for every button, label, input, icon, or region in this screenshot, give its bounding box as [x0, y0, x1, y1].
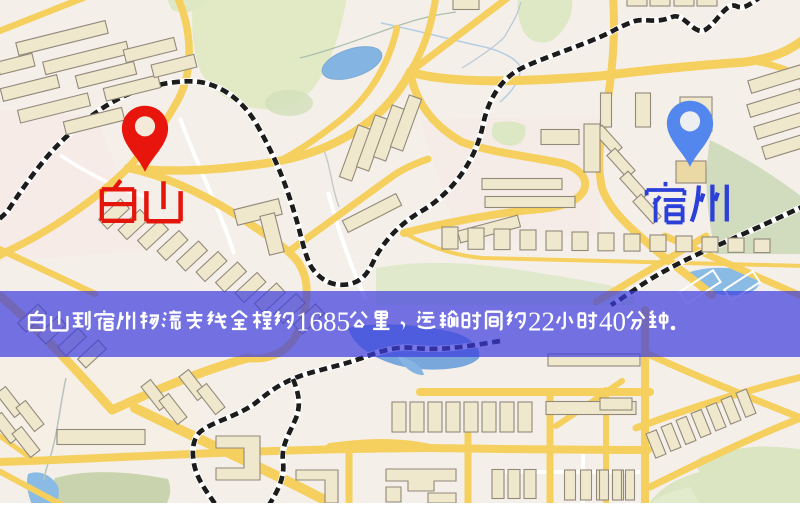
- svg-text:22: 22: [528, 307, 555, 337]
- svg-text:40: 40: [599, 307, 626, 337]
- svg-text:1685: 1685: [296, 307, 350, 337]
